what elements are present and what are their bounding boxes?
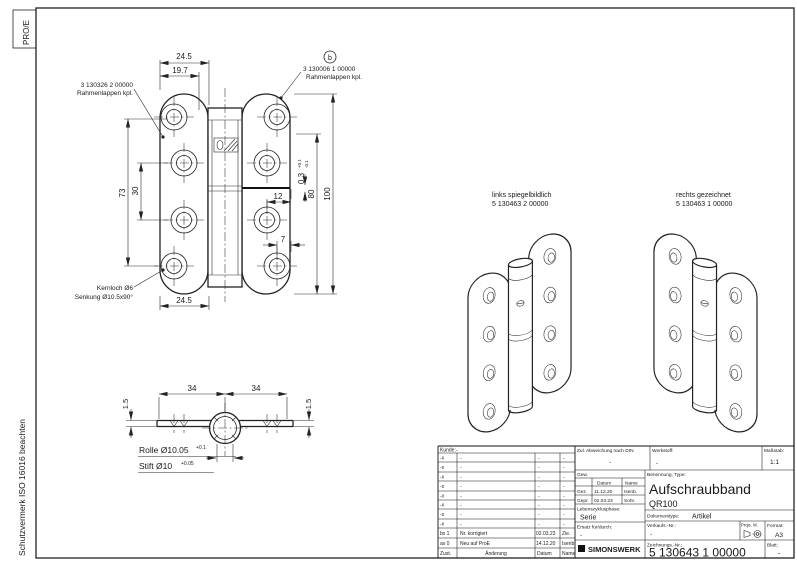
dim-12: 12: [274, 192, 283, 201]
name-column-header: Name: [625, 481, 638, 487]
svg-text:-: -: [538, 503, 540, 509]
dim-73: 73: [118, 188, 127, 197]
verkaufs-value: -: [650, 533, 652, 539]
massstab-label: Maßstab:: [764, 448, 784, 454]
dim-100: 100: [323, 187, 332, 201]
benennung-label: Benennung, Type:: [647, 472, 686, 478]
svg-text:Neu auf ProE: Neu auf ProE: [460, 541, 491, 547]
stift-tolerance: +0.05: [181, 461, 194, 467]
left-part-number: 3 130326 2 00000: [81, 82, 134, 89]
zul-abweichung-value: -: [609, 460, 611, 466]
svg-text:-: -: [563, 522, 565, 528]
ersatz-value: -: [580, 533, 582, 539]
dokumenttype-value: Artikel: [692, 514, 712, 521]
svg-text:-: -: [538, 522, 540, 528]
blatt-value: -: [778, 551, 781, 558]
svg-text:-x: -x: [440, 465, 445, 471]
dim-top-24-5: 24.5: [176, 52, 192, 61]
left-part-name: Rahmenlappen kpl.: [77, 90, 133, 97]
svg-text:-: -: [563, 465, 565, 471]
werkstoff-value: -: [656, 461, 658, 467]
dim-1-5-left: 1.5: [121, 399, 130, 409]
svg-text:-: -: [460, 456, 462, 462]
right-part-name: Rahmenlappen kpl.: [306, 74, 362, 81]
svg-text:-: -: [460, 512, 462, 518]
svg-text:-x: -x: [440, 494, 445, 500]
revision-entry-rows: bx 1Nr. korrigiert02.03.23Zie. ax 0Neu a…: [440, 531, 576, 557]
svg-text:-: -: [563, 456, 565, 462]
dim-80: 80: [307, 189, 316, 198]
svg-text:-x: -x: [440, 456, 445, 462]
iso-left-part-number: 5 130463 2 00000: [492, 201, 549, 208]
revision-empty-rows: -x--- -x--- -x--- -x--- -x--- -x--- -x--…: [440, 456, 565, 528]
svg-text:-: -: [460, 475, 462, 481]
svg-text:-: -: [563, 512, 565, 518]
svg-text:Zie.: Zie.: [562, 531, 570, 537]
svg-text:-x: -x: [440, 503, 445, 509]
svg-text:-: -: [538, 484, 540, 490]
right-part-number: 3 130006 1 00000: [303, 66, 356, 73]
iso-hinge-left: [468, 231, 571, 435]
copyright-note: Schutzvermerk ISO 16016 beachten: [17, 419, 27, 556]
engineering-drawing-canvas: PRO/E Schutzvermerk ISO 16016 beachten: [0, 0, 797, 567]
svg-text:bx 1: bx 1: [440, 531, 450, 537]
detail-marker-b: b: [328, 55, 332, 62]
simonswerk-logo-text: SIMONSWERK: [588, 545, 641, 554]
first-angle-projection-icon: [744, 531, 763, 538]
svg-text:-: -: [563, 503, 565, 509]
ersatz-label: Ersatz für/durch:: [577, 525, 612, 531]
front-view: 24.5 19.7 73 30 100 80 0.3 +0.1 -0.1: [75, 51, 362, 310]
section-labels: Rolle Ø10.05 +0.1 Stift Ø10 +0.05: [138, 445, 236, 473]
iso-right-part-number: 5 130463 1 00000: [676, 201, 733, 208]
iso-left-caption: links spiegelbildlich: [492, 192, 552, 199]
senkung-label: Senkung Ø10.5x90°: [75, 293, 134, 301]
svg-text:-x: -x: [440, 522, 445, 528]
kunde-label: Kunde:-: [440, 448, 458, 454]
gezeichnet-label: Gez.: [577, 489, 587, 495]
rolle-tolerance: +0.1: [196, 445, 206, 451]
dim-gap: 0.3: [297, 172, 306, 184]
geprueft-datum: 02.03.23: [594, 498, 613, 504]
gezeichnet-datum: 11.12.20: [594, 489, 613, 495]
datum-column-header: Datum: [597, 481, 611, 487]
svg-text:-: -: [563, 475, 565, 481]
type-value: QR100: [649, 499, 678, 509]
dim-bottom-24-5: 24.5: [176, 296, 192, 305]
svg-text:-: -: [460, 494, 462, 500]
svg-text:-: -: [460, 522, 462, 528]
dim-19-7: 19.7: [172, 66, 188, 75]
dim-30: 30: [131, 186, 140, 195]
svg-text:Name: Name: [562, 551, 576, 557]
zul-abweichung-label: Zul. Abweichung nach DIN: [577, 448, 634, 454]
svg-text:14.12.20: 14.12.20: [536, 541, 556, 547]
dim-gap-tol-up: +0.1: [297, 159, 302, 168]
lebenszyklus-value: Serie: [580, 515, 596, 522]
svg-text:-: -: [538, 456, 540, 462]
svg-text:-: -: [538, 512, 540, 518]
dim-1-5-right: 1.5: [304, 399, 313, 409]
svg-text:Nr. korrigiert: Nr. korrigiert: [460, 531, 488, 537]
svg-text:Zust.: Zust.: [440, 551, 451, 557]
svg-text:-: -: [538, 465, 540, 471]
dim-7: 7: [281, 235, 286, 244]
section-view: 34 34 1.5 1.5 Rolle Ø10.05 +0.1 Stift Ø1…: [121, 384, 314, 473]
svg-text:02.03.23: 02.03.23: [536, 531, 556, 537]
title-block: Kunde:- -x--- -x--- -x--- -x--- -x--- -x…: [438, 446, 794, 560]
proe-label: PRO/E: [22, 20, 31, 45]
verkaufs-label: Verkaufs.-Nr.:: [647, 523, 676, 529]
svg-text:-: -: [563, 484, 565, 490]
format-value: A3: [775, 532, 783, 539]
svg-text:-x: -x: [440, 484, 445, 490]
simonswerk-logo-mark: [578, 545, 585, 552]
svg-text:-: -: [460, 484, 462, 490]
massstab-value: 1:1: [770, 459, 779, 466]
gewicht-label: Gew.: [577, 472, 588, 478]
svg-text:-: -: [460, 465, 462, 471]
svg-text:Datum: Datum: [537, 551, 552, 557]
benennung-value: Aufschraubband: [649, 481, 751, 497]
projektionsmethode-label: Proje. M.: [741, 523, 758, 528]
lebenszyklus-label: Lebenszyklusphase:: [577, 507, 620, 513]
dim-34-left: 34: [188, 384, 197, 393]
iso-hinge-right: [654, 231, 757, 435]
zeichnungsnummer-value: 5 130643 1 00000: [649, 546, 746, 560]
svg-text:-: -: [563, 494, 565, 500]
geprueft-name: Sohr.: [624, 498, 635, 504]
stift-label: Stift Ø10: [139, 461, 172, 471]
geprueft-label: Gepr.: [577, 498, 589, 504]
rolle-label: Rolle Ø10.05: [139, 445, 189, 455]
format-label: Format:: [767, 523, 784, 529]
svg-text:Isenb: Isenb: [562, 541, 574, 547]
svg-text:-: -: [460, 503, 462, 509]
drawing-sheet: PRO/E Schutzvermerk ISO 16016 beachten: [0, 0, 797, 567]
kernloch-label: Kernloch Ø6: [97, 285, 134, 292]
blatt-label: Blatt:: [767, 543, 778, 549]
svg-text:-x: -x: [440, 512, 445, 518]
svg-text:ax 0: ax 0: [440, 541, 450, 547]
svg-text:-: -: [538, 475, 540, 481]
gezeichnet-name: Isenb.: [624, 489, 637, 495]
iso-views: links spiegelbildlich 5 130463 2 00000 r…: [468, 192, 757, 435]
werkstoff-label: Werkstoff:: [652, 448, 673, 454]
svg-text:Änderung: Änderung: [485, 550, 507, 557]
svg-text:-: -: [538, 494, 540, 500]
svg-text:-x: -x: [440, 475, 445, 481]
dim-gap-tol-dn: -0.1: [304, 160, 309, 168]
dim-34-right: 34: [252, 384, 261, 393]
dokumenttype-label: Dokumenttype:: [647, 514, 679, 520]
iso-right-caption: rechts gezeichnet: [676, 192, 731, 199]
